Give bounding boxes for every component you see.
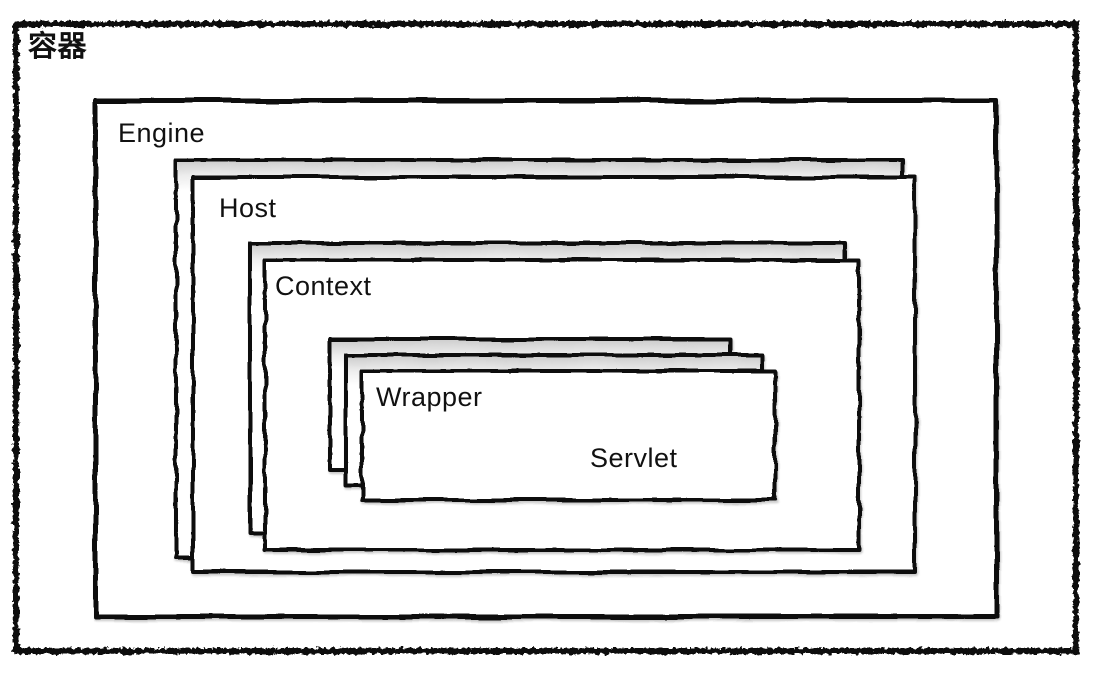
engine-label: Engine bbox=[118, 119, 205, 149]
context-label: Context bbox=[275, 272, 372, 302]
labels-layer: 容器 Engine Host Context Wrapper Servlet bbox=[0, 0, 1100, 674]
wrapper-label: Wrapper bbox=[376, 383, 483, 413]
host-label: Host bbox=[219, 194, 277, 224]
nested-container-diagram: 容器 Engine Host Context Wrapper Servlet bbox=[0, 0, 1100, 674]
container-label: 容器 bbox=[28, 32, 87, 64]
servlet-label: Servlet bbox=[590, 444, 678, 474]
